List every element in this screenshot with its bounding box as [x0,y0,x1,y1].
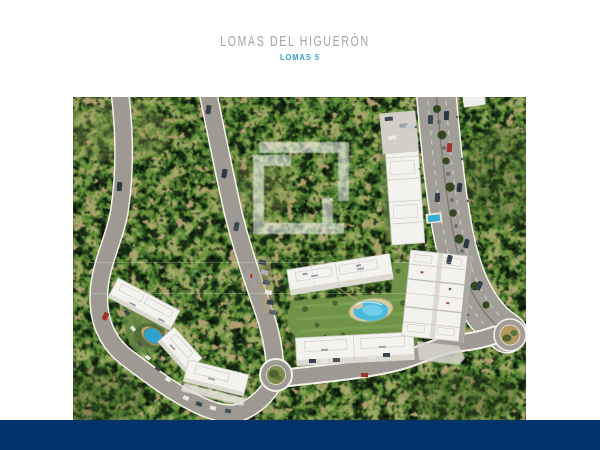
svg-text:LUCAS FOX: LUCAS FOX [169,266,377,291]
